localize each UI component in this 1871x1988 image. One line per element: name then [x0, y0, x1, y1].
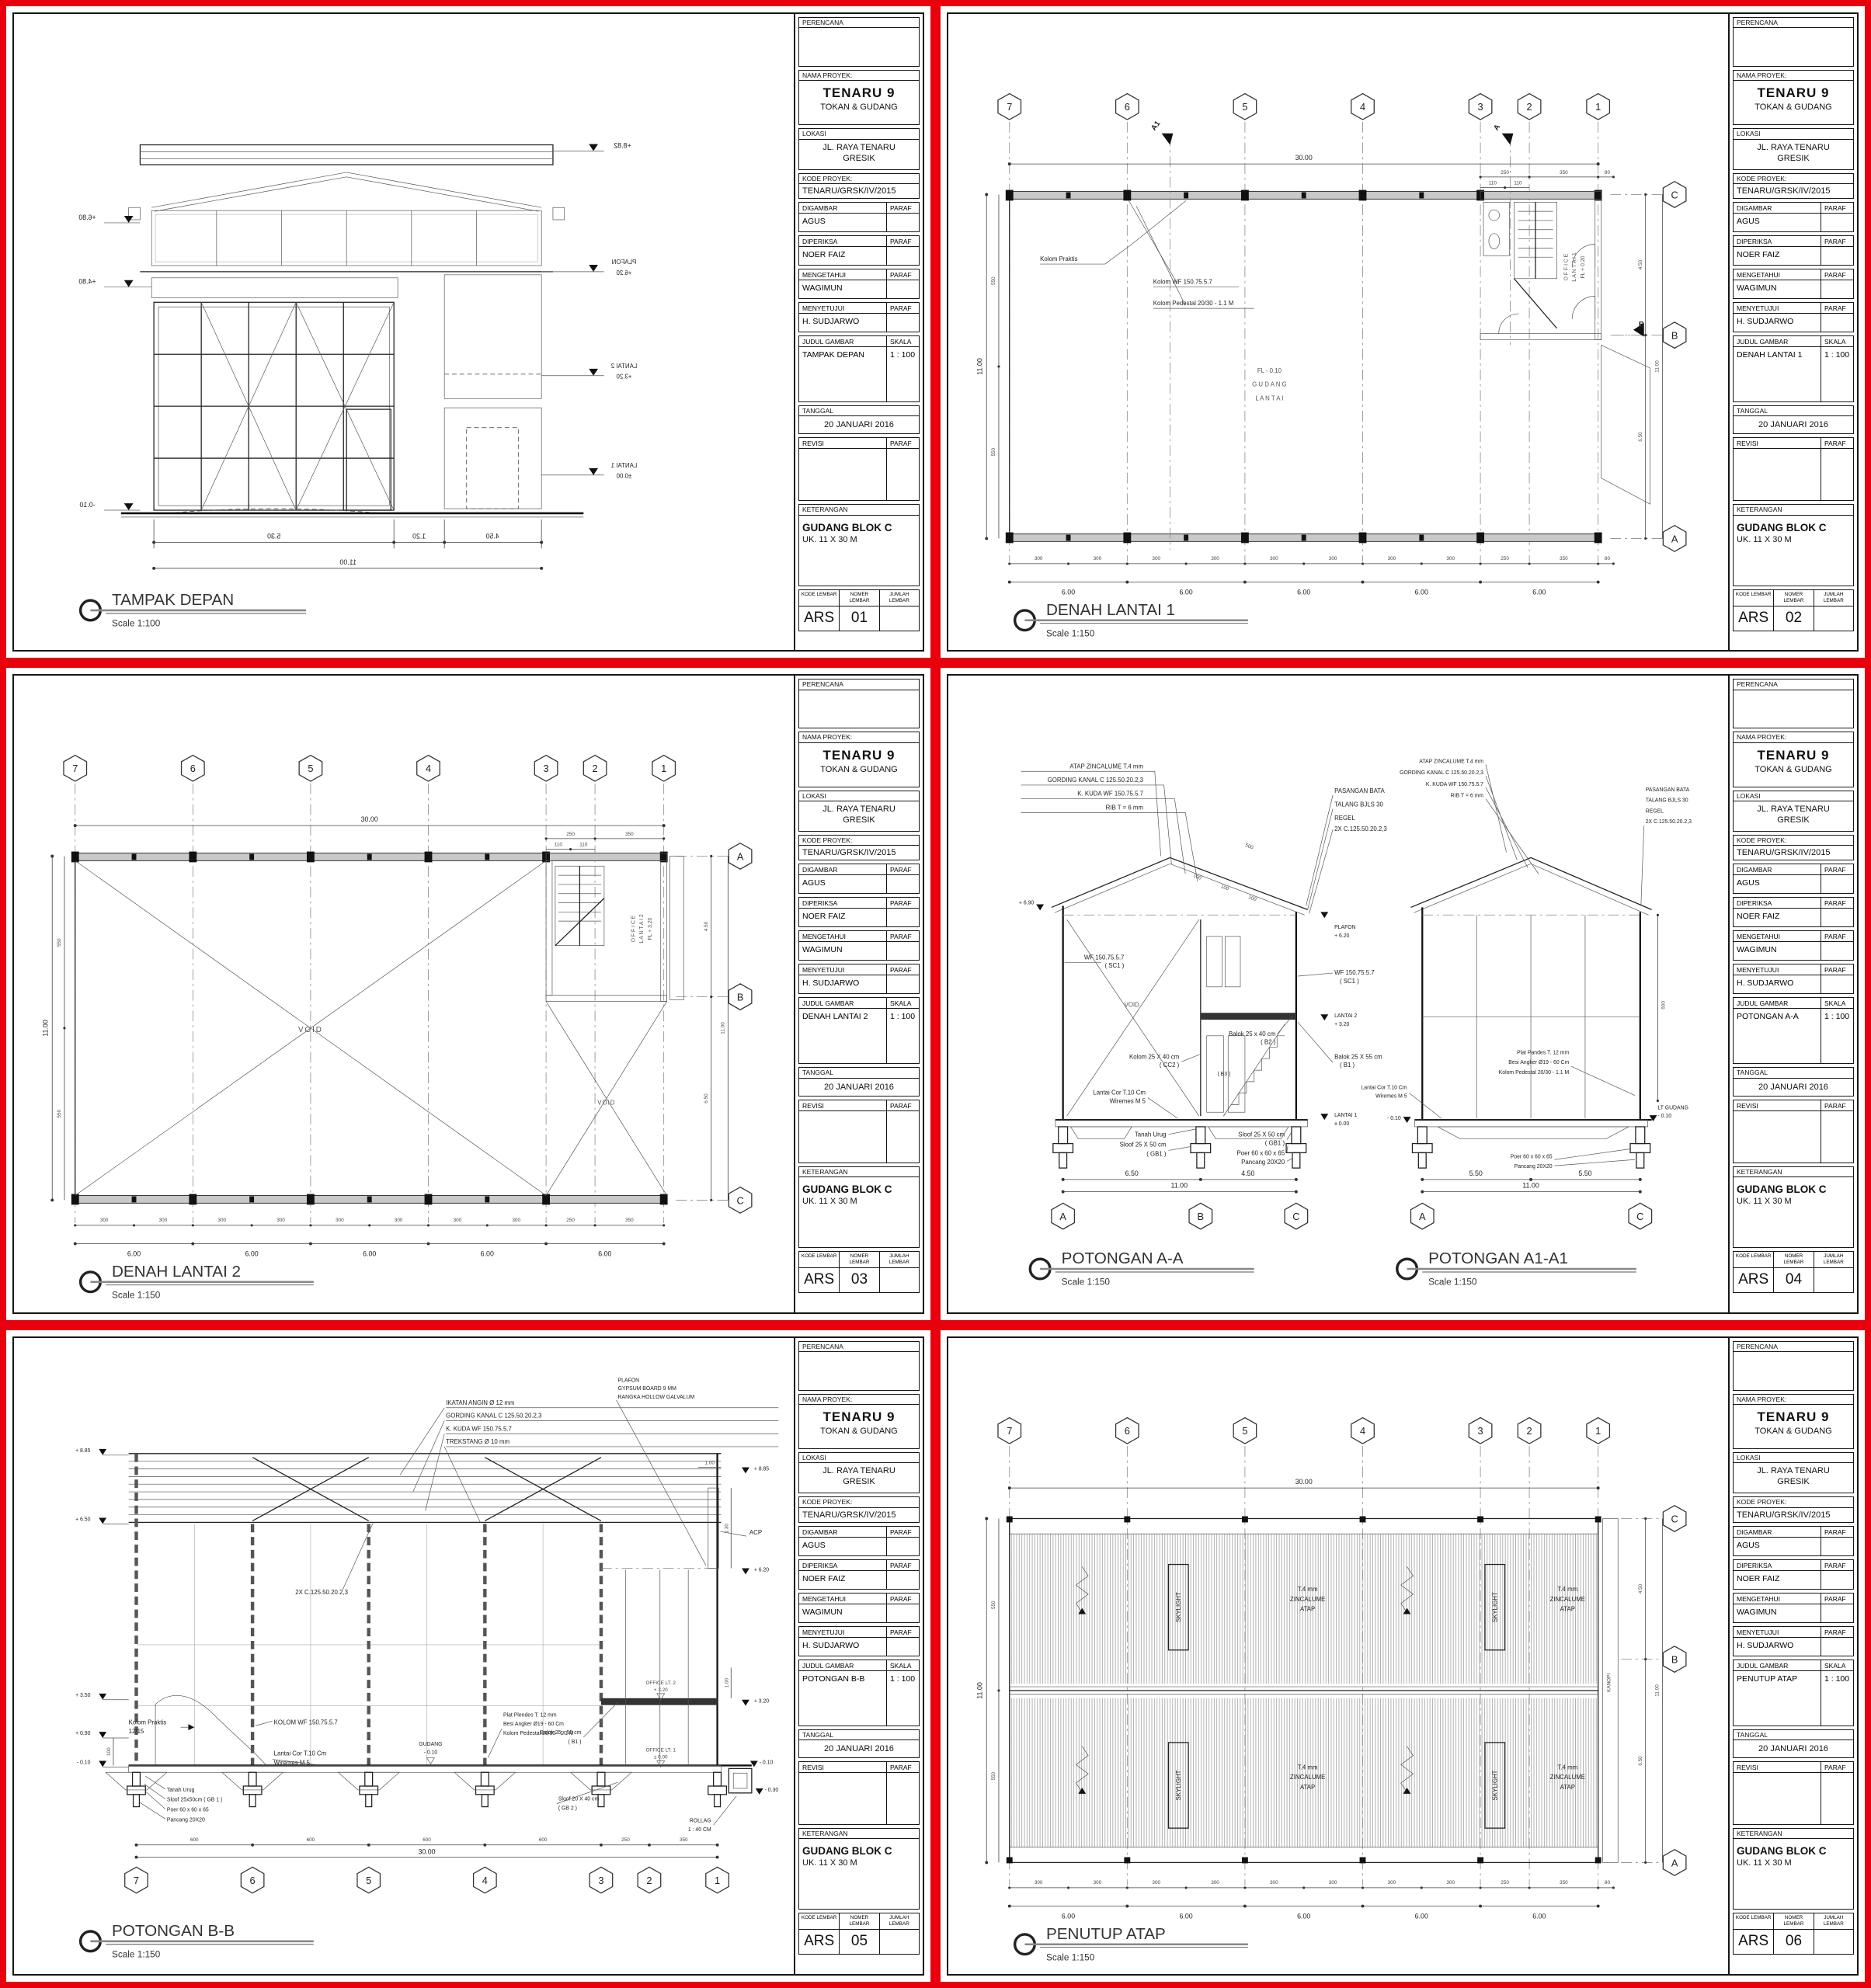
skala-label: SKALA [886, 1660, 919, 1671]
diperiksa-label: DIPERIKSA [1734, 1560, 1821, 1571]
svg-text:Poer 60 x 60 x 65: Poer 60 x 60 x 65 [167, 1807, 209, 1812]
svg-text:11.00: 11.00 [1654, 360, 1660, 373]
svg-text:6.00: 6.00 [127, 1250, 141, 1258]
section-a1-marker: A1 [1149, 119, 1163, 132]
tanggal-value: 20 JANUARI 2016 [799, 1079, 919, 1096]
paraf-cell [886, 1571, 919, 1589]
svg-text:6: 6 [250, 1875, 256, 1886]
sheet3-drawing-area: 7 6 5 4 3 2 1 A B C [14, 676, 794, 1312]
keterangan-line1: GUDANG BLOK C [802, 1183, 916, 1195]
svg-text:Poer 60 x 60 x 65: Poer 60 x 60 x 65 [1236, 1150, 1285, 1157]
skala-value: 1 : 100 [1821, 1009, 1853, 1063]
svg-text:+ 6.50: + 6.50 [75, 1517, 90, 1522]
titleblock-digambar: DIGAMBARPARAF AGUS [798, 202, 920, 232]
grid-bubbles-columns: 7 6 5 4 3 2 1 [998, 94, 1609, 120]
skala-value: 1 : 100 [886, 347, 919, 401]
lokasi-line1: JL. RAYA TENARU [802, 1466, 916, 1475]
elevation-level-marks: +8.82 +6.80 +4.80 -0.10 PLAFON +6.20 LAN… [78, 141, 637, 510]
svg-text:2: 2 [1527, 1425, 1532, 1437]
nomer-lembar-value: 03 [840, 1268, 878, 1292]
svg-text:- 0.10: - 0.10 [1387, 1116, 1401, 1121]
titleblock-diperiksa: DIPERIKSAPARAF NOER FAIZ [798, 235, 920, 266]
caption: PENUTUP ATAP Scale 1:150 [1015, 1925, 1248, 1963]
svg-text:300: 300 [1094, 1880, 1102, 1885]
svg-text:+ 0.90: + 0.90 [75, 1731, 90, 1736]
svg-text:5.50: 5.50 [1578, 1170, 1591, 1177]
kode-proyek-value: TENARU/GRSK/IV/2015 [1734, 1508, 1853, 1522]
skala-label: SKALA [1821, 998, 1853, 1009]
titleblock-mengetahui: MENGETAHUIPARAF WAGIMUN [798, 269, 920, 299]
svg-text:300: 300 [1152, 556, 1160, 561]
elevation-dimensions: 5.30 1.20 4.50 11.00 [152, 520, 543, 570]
paraf-cell [1821, 875, 1853, 893]
project-name: TENARU 9 [1737, 1409, 1850, 1425]
paraf-label: PARAF [1821, 438, 1853, 449]
keterangan-value: GUDANG BLOK C UK. 11 X 30 M [1734, 516, 1853, 586]
titleblock-lokasi: LOKASI JL. RAYA TENARU GRESIK [798, 128, 920, 169]
paraf-label: PARAF [1821, 1527, 1853, 1538]
svg-text:ZINCALUME: ZINCALUME [1290, 1774, 1325, 1781]
svg-text:A: A [1671, 533, 1678, 544]
svg-text:Kolom WF 150.75.5.7: Kolom WF 150.75.5.7 [1153, 279, 1212, 286]
svg-text:C: C [1636, 1211, 1643, 1222]
level-plafon-label: PLAFON [611, 259, 636, 266]
svg-text:550: 550 [57, 1110, 62, 1118]
svg-text:300: 300 [1388, 1880, 1396, 1885]
caption-title: POTONGAN B-B [112, 1922, 235, 1940]
svg-text:110: 110 [1489, 181, 1497, 186]
judul-gambar-label: JUDUL GAMBAR [1734, 998, 1821, 1009]
judul-gambar-value: POTONGAN B-B [799, 1671, 886, 1726]
nama-proyek-value: TENARU 9 TOKAN & GUDANG [1734, 743, 1853, 787]
titleblock-keterangan: KETERANGAN GUDANG BLOK C UK. 11 X 30 M [798, 1166, 920, 1248]
svg-text:TREKSTANG Ø 10 mm: TREKSTANG Ø 10 mm [446, 1438, 509, 1445]
paraf-cell [886, 909, 919, 926]
perencana-value [1734, 28, 1853, 66]
sheet5-titleblock: PERENCANA NAMA PROYEK: TENARU 9 TOKAN & … [794, 1338, 923, 1974]
paraf-cell [1821, 1571, 1853, 1589]
nama-proyek-label: NAMA PROYEK: [799, 1395, 919, 1405]
keterangan-value: GUDANG BLOK C UK. 11 X 30 M [799, 1839, 919, 1909]
svg-text:WF 150.75.5.7: WF 150.75.5.7 [1334, 969, 1375, 976]
digambar-label: DIGAMBAR [799, 864, 886, 875]
skala-value: 1 : 100 [1821, 1671, 1853, 1726]
svg-text:300: 300 [1270, 556, 1278, 561]
kode-proyek-label: KODE PROYEK: [1734, 836, 1853, 846]
titleblock-nama-proyek: NAMA PROYEK: TENARU 9 TOKAN & GUDANG [798, 70, 920, 125]
svg-text:ZINCALUME: ZINCALUME [1550, 1774, 1585, 1781]
wall-framing [136, 1453, 717, 1765]
project-subtitle: TOKAN & GUDANG [802, 103, 916, 112]
svg-text:1: 1 [1595, 101, 1601, 113]
digambar-value: AGUS [799, 875, 886, 893]
level-680: +6.80 [78, 214, 96, 221]
svg-text:( B1 ): ( B1 ) [569, 1739, 582, 1745]
office-label: O F F I C E L A N T A I 2 FL + 3.20 [631, 914, 653, 944]
tanggal-label: TANGGAL [1734, 1068, 1853, 1078]
svg-text:O F F I C E: O F F I C E [631, 916, 636, 943]
dim-450: 4.50 [485, 532, 499, 540]
titleblock-tanggal: TANGGAL 20 JANUARI 2016 [1733, 1067, 1854, 1096]
paraf-cell [886, 942, 919, 960]
keterangan-label: KETERANGAN [1734, 1829, 1853, 1839]
grid-bubbles-columns: 7 6 5 4 3 2 1 [998, 1417, 1609, 1443]
paraf-label: PARAF [1821, 236, 1853, 247]
titleblock-judul-gambar: JUDUL GAMBARSKALA DENAH LANTAI 11 : 100 [1733, 335, 1854, 402]
svg-text:GORDING KANAL C 125.50.20.2,3: GORDING KANAL C 125.50.20.2,3 [1048, 777, 1144, 784]
titleblock-perencana: PERENCANA [798, 679, 920, 728]
svg-text:T.4 mm: T.4 mm [1557, 1586, 1577, 1593]
svg-text:7: 7 [134, 1875, 139, 1886]
svg-text:300: 300 [1094, 556, 1102, 561]
svg-text:4.50: 4.50 [704, 922, 709, 932]
revisi-cell [799, 1111, 886, 1163]
caption-scale: Scale 1:150 [1046, 1952, 1095, 1962]
section-a-a: VOID [1052, 858, 1308, 1169]
nomer-lembar-label: NOMER LEMBAR [840, 1252, 878, 1268]
grid-bubbles-rows: C B A [1610, 182, 1685, 551]
keterangan-label: KETERANGAN [1734, 505, 1853, 515]
paraf-label: PARAF [1821, 864, 1853, 875]
level-882: +8.82 [614, 141, 631, 149]
grid-bubbles-rows: A B C [676, 843, 751, 1213]
titleblock-revisi: REVISIPARAF [1733, 1761, 1854, 1825]
titleblock-diperiksa: DIPERIKSAPARAF NOER FAIZ [798, 1559, 920, 1590]
svg-text:300: 300 [276, 1218, 285, 1223]
mengetahui-label: MENGETAHUI [1734, 1594, 1821, 1604]
revisi-label: REVISI [799, 1100, 886, 1111]
lokasi-value: JL. RAYA TENARU GRESIK [1734, 1463, 1853, 1493]
caption-title: PENUTUP ATAP [1046, 1925, 1166, 1943]
svg-text:6: 6 [190, 763, 196, 775]
svg-text:SKYLIGHT: SKYLIGHT [1175, 1770, 1182, 1800]
svg-text:300: 300 [159, 1218, 168, 1223]
svg-text:Pancang 20X20: Pancang 20X20 [1515, 1164, 1553, 1170]
judul-gambar-value: POTONGAN A-A [1734, 1009, 1821, 1063]
titleblock-menyetujui: MENYETUJUIPARAF H. SUDJARWO [798, 1626, 920, 1656]
titleblock-mengetahui: MENGETAHUIPARAF WAGIMUN [1733, 1593, 1854, 1623]
paraf-label: PARAF [886, 236, 919, 247]
titleblock-kode-proyek: KODE PROYEK: TENARU/GRSK/IV/2015 [1733, 173, 1854, 199]
svg-text:A: A [1671, 1857, 1678, 1868]
lokasi-line1: JL. RAYA TENARU [1737, 1466, 1850, 1475]
lokasi-line2: GRESIK [1737, 154, 1850, 163]
svg-text:GUDANG: GUDANG [419, 1741, 442, 1746]
plan-walls [1006, 190, 1602, 544]
nama-proyek-value: TENARU 9 TOKAN & GUDANG [1734, 81, 1853, 124]
svg-text:1 : 40 CM: 1 : 40 CM [688, 1827, 711, 1833]
lokasi-label: LOKASI [799, 1453, 919, 1463]
sheet1-titleblock: PERENCANA NAMA PROYEK: TENARU 9 TOKAN & … [794, 14, 923, 650]
tanggal-label: TANGGAL [799, 1730, 919, 1740]
svg-text:TALANG BJLS 30: TALANG BJLS 30 [1646, 798, 1688, 804]
project-subtitle: TOKAN & GUDANG [802, 765, 916, 774]
titleblock-judul-gambar: JUDUL GAMBARSKALA DENAH LANTAI 21 : 100 [798, 997, 920, 1064]
caption: DENAH LANTAI 2 Scale 1:150 [81, 1263, 314, 1301]
tanggal-value: 20 JANUARI 2016 [1734, 416, 1853, 433]
titleblock-tanggal: TANGGAL 20 JANUARI 2016 [798, 1729, 920, 1758]
paraf-cell [886, 280, 919, 298]
titleblock-mengetahui: MENGETAHUIPARAF WAGIMUN [1733, 269, 1854, 299]
keterangan-label: KETERANGAN [799, 1167, 919, 1177]
revisi-cell [1734, 1773, 1821, 1824]
lokasi-line1: JL. RAYA TENARU [802, 805, 916, 814]
svg-text:ATAP: ATAP [1560, 1605, 1575, 1612]
project-subtitle: TOKAN & GUDANG [1737, 765, 1850, 774]
svg-text:250: 250 [566, 1218, 575, 1223]
titleblock-revisi: REVISIPARAF [1733, 437, 1854, 501]
kode-proyek-label: KODE PROYEK: [799, 836, 919, 846]
svg-text:350: 350 [1560, 1880, 1568, 1885]
titleblock-judul-gambar: JUDUL GAMBARSKALA POTONGAN A-A1 : 100 [1733, 997, 1854, 1064]
svg-text:300: 300 [1152, 1880, 1160, 1885]
paraf-cell [1821, 1773, 1853, 1824]
titleblock-revisi: REVISIPARAF [798, 437, 920, 501]
lokasi-line2: GRESIK [802, 154, 916, 163]
revisi-label: REVISI [1734, 438, 1821, 449]
titleblock-keterangan: KETERANGAN GUDANG BLOK C UK. 11 X 30 M [798, 1828, 920, 1910]
judul-gambar-value: DENAH LANTAI 1 [1734, 347, 1821, 401]
svg-text:2X C.125.50.20.2,3: 2X C.125.50.20.2,3 [295, 1589, 348, 1596]
svg-text:+ 3.50: + 3.50 [75, 1692, 90, 1698]
paraf-label: PARAF [1821, 203, 1853, 214]
svg-text:L A N T A I 1: L A N T A I 1 [1572, 252, 1577, 282]
svg-text:Plat Pandes T. 12 mm: Plat Pandes T. 12 mm [1517, 1051, 1569, 1056]
office-area: O F F I C E L A N T A I 1 FL + 0.20 [1480, 192, 1601, 340]
svg-text:RIB T = 6 mm: RIB T = 6 mm [1451, 794, 1484, 799]
titleblock-menyetujui: MENYETUJUIPARAF H. SUDJARWO [1733, 1626, 1854, 1656]
keterangan-line2: UK. 11 X 30 M [1737, 535, 1850, 544]
svg-text:300: 300 [1035, 556, 1043, 561]
skala-value: 1 : 100 [886, 1009, 919, 1063]
keterangan-line1: GUDANG BLOK C [1737, 1183, 1850, 1195]
svg-text:ZINCALUME: ZINCALUME [1290, 1595, 1325, 1602]
office-mezzanine [601, 1488, 719, 1764]
jumlah-lembar-value [880, 606, 919, 613]
judul-gambar-label: JUDUL GAMBAR [799, 1660, 886, 1671]
nama-proyek-value: TENARU 9 TOKAN & GUDANG [799, 743, 919, 787]
svg-text:6.00: 6.00 [1415, 1912, 1428, 1920]
titleblock-digambar: DIGAMBARPARAF AGUS [1733, 864, 1854, 894]
svg-text:1.00: 1.00 [705, 1460, 715, 1465]
caption-scale: Scale 1:150 [112, 1290, 161, 1301]
svg-text:6: 6 [1125, 101, 1130, 113]
svg-text:L A N T A I: L A N T A I [1255, 394, 1283, 401]
kode-proyek-label: KODE PROYEK: [799, 1497, 919, 1507]
lokasi-line1: JL. RAYA TENARU [802, 143, 916, 152]
keterangan-line1: GUDANG BLOK C [802, 1845, 916, 1857]
svg-text:B: B [1671, 330, 1678, 342]
keterangan-line1: GUDANG BLOK C [1737, 1845, 1850, 1857]
paraf-cell [1821, 975, 1853, 993]
svg-text:G U D A N G: G U D A N G [1252, 381, 1287, 388]
section-a1-a1 [1411, 858, 1652, 1169]
paraf-cell [1821, 909, 1853, 926]
titleblock-tanggal: TANGGAL 20 JANUARI 2016 [1733, 1729, 1854, 1758]
nama-proyek-value: TENARU 9 TOKAN & GUDANG [1734, 1405, 1853, 1448]
svg-text:2: 2 [646, 1875, 652, 1886]
gudang-label: FL - 0.10 G U D A N G L A N T A I [1252, 367, 1287, 401]
caption-scale: Scale 1:100 [112, 618, 161, 629]
dimensions: 30.00 250 350 110 110 11.00 550 550 4.50… [41, 816, 728, 1258]
lokasi-value: JL. RAYA TENARU GRESIK [1734, 140, 1853, 169]
section-a1-a1-notes: ATAP ZINCALUME T.4 mm GORDING KANAL C 12… [1361, 759, 1692, 1170]
section-a-marker: A [1492, 123, 1502, 132]
svg-text:A: A [737, 851, 744, 863]
svg-text:( GB1 ): ( GB1 ) [1265, 1140, 1285, 1147]
svg-text:250: 250 [1501, 556, 1509, 561]
svg-text:LT GUDANG: LT GUDANG [1657, 1106, 1688, 1111]
svg-text:4: 4 [482, 1875, 488, 1886]
titleblock-keterangan: KETERANGAN GUDANG BLOK C UK. 11 X 30 M [798, 504, 920, 586]
svg-text:( B3 ): ( B3 ) [1217, 1072, 1230, 1077]
titleblock-sheet-number: KODE LEMBARARS NOMER LEMBAR01 JUMLAH LEM… [798, 589, 920, 631]
paraf-label: PARAF [886, 1527, 919, 1538]
digambar-label: DIGAMBAR [1734, 1527, 1821, 1538]
titleblock-kode-proyek: KODE PROYEK: TENARU/GRSK/IV/2015 [798, 173, 920, 199]
kode-proyek-label: KODE PROYEK: [1734, 174, 1853, 184]
menyetujui-label: MENYETUJUI [799, 1627, 886, 1638]
skala-label: SKALA [886, 998, 919, 1009]
svg-text:7: 7 [1007, 101, 1012, 113]
digambar-label: DIGAMBAR [1734, 203, 1821, 214]
revisi-cell [1734, 449, 1821, 500]
sheet-penutup-atap: 7 6 5 4 3 2 1 C B A KANOPI [941, 1330, 1865, 1982]
jumlah-lembar-value [1814, 1268, 1853, 1275]
mengetahui-label: MENGETAHUI [1734, 931, 1821, 942]
kode-lembar-value: ARS [1734, 606, 1773, 631]
svg-text:11.00: 11.00 [975, 358, 983, 375]
paraf-cell [1821, 247, 1853, 265]
svg-text:300: 300 [1388, 556, 1396, 561]
titleblock-nama-proyek: NAMA PROYEK: TENARU 9 TOKAN & GUDANG [798, 732, 920, 787]
jumlah-lembar-label: JUMLAH LEMBAR [880, 1252, 919, 1268]
svg-text:Wiremes M 5: Wiremes M 5 [1110, 1098, 1146, 1105]
svg-text:Plat Plendes T. 12 mm: Plat Plendes T. 12 mm [503, 1712, 557, 1718]
titleblock-revisi: REVISIPARAF [798, 1100, 920, 1163]
svg-text:250: 250 [566, 832, 575, 837]
keterangan-label: KETERANGAN [799, 1829, 919, 1839]
svg-text:ATAP: ATAP [1300, 1784, 1315, 1791]
paraf-label: PARAF [1821, 964, 1853, 975]
titleblock-judul-gambar: JUDUL GAMBARSKALA PENUTUP ATAP1 : 100 [1733, 1660, 1854, 1726]
judul-gambar-label: JUDUL GAMBAR [1734, 1660, 1821, 1671]
svg-text:Tanah Urug: Tanah Urug [1135, 1131, 1167, 1138]
svg-text:+ 3.20: + 3.20 [1334, 1022, 1349, 1027]
svg-text:80: 80 [1605, 556, 1611, 561]
lokasi-line2: GRESIK [1737, 815, 1850, 825]
svg-text:RIB T = 6 mm: RIB T = 6 mm [1106, 805, 1144, 812]
sheet5-drawing-area: IKATAN ANGIN Ø 12 mm GORDING KANAL C 125… [14, 1338, 794, 1974]
caption: TAMPAK DEPAN Scale 1:100 [81, 591, 306, 629]
svg-text:+ 6.20: + 6.20 [754, 1567, 769, 1573]
svg-text:6.50: 6.50 [704, 1093, 709, 1103]
svg-text:K. KUDA WF 150.75.5.7: K. KUDA WF 150.75.5.7 [1077, 791, 1143, 798]
svg-text:Tanah Urug: Tanah Urug [167, 1788, 195, 1793]
svg-text:Besi Angker Ø19 - 60 Cm: Besi Angker Ø19 - 60 Cm [503, 1722, 564, 1727]
kode-proyek-value: TENARU/GRSK/IV/2015 [799, 1508, 919, 1522]
perencana-value [1734, 1352, 1853, 1390]
svg-text:5: 5 [1242, 1425, 1247, 1437]
titleblock-digambar: DIGAMBARPARAF AGUS [1733, 1526, 1854, 1556]
svg-text:Pancang 20X20: Pancang 20X20 [1241, 1159, 1285, 1166]
titleblock-lokasi: LOKASI JL. RAYA TENARU GRESIK [1733, 791, 1854, 832]
paraf-cell [1821, 449, 1853, 500]
lokasi-label: LOKASI [799, 791, 919, 801]
kanopi-label: KANOPI [1606, 1673, 1612, 1691]
paraf-label: PARAF [1821, 303, 1853, 314]
paraf-label: PARAF [886, 898, 919, 909]
tanggal-label: TANGGAL [799, 406, 919, 416]
kode-lembar-value: ARS [1734, 1268, 1773, 1292]
titleblock-kode-proyek: KODE PROYEK: TENARU/GRSK/IV/2015 [798, 835, 920, 860]
sheet-potongan-a: VOID ATAP ZINCALUME T.4 mm GORDING KANAL… [941, 668, 1865, 1319]
judul-gambar-label: JUDUL GAMBAR [799, 998, 886, 1009]
section-a-a-dims: 6.50 4.50 11.00 A B C [1052, 1170, 1308, 1229]
titleblock-sheet-number: KODE LEMBARARS NOMER LEMBAR06 JUMLAH LEM… [1733, 1913, 1854, 1955]
mengetahui-label: MENGETAHUI [799, 269, 886, 280]
svg-text:4: 4 [1360, 1425, 1365, 1437]
svg-text:LANTAI 1: LANTAI 1 [1334, 1113, 1357, 1118]
svg-text:KOLOM WF 150.75.5.7: KOLOM WF 150.75.5.7 [274, 1719, 338, 1726]
skala-label: SKALA [1821, 1660, 1853, 1671]
sheet-denah-lantai-2: 7 6 5 4 3 2 1 A B C [6, 668, 930, 1319]
svg-text:6.00: 6.00 [1062, 588, 1075, 596]
titleblock-perencana: PERENCANA [798, 1341, 920, 1391]
menyetujui-label: MENYETUJUI [799, 303, 886, 314]
svg-text:4.50: 4.50 [1638, 1583, 1643, 1594]
svg-text:SKYLIGHT: SKYLIGHT [1175, 1592, 1182, 1622]
keterangan-line2: UK. 11 X 30 M [1737, 1197, 1850, 1206]
kode-lembar-label: KODE LEMBAR [799, 1252, 839, 1268]
caption: DENAH LANTAI 1 Scale 1:150 [1015, 601, 1248, 639]
project-name: TENARU 9 [1737, 85, 1850, 101]
svg-text:T.4 mm: T.4 mm [1557, 1764, 1577, 1771]
revisi-label: REVISI [799, 438, 886, 449]
titleblock-nama-proyek: NAMA PROYEK: TENARU 9 TOKAN & GUDANG [1733, 1394, 1854, 1449]
svg-text:3: 3 [544, 763, 549, 775]
tanggal-value: 20 JANUARI 2016 [1734, 1740, 1853, 1757]
svg-text:PASANGAN BATA: PASANGAN BATA [1334, 787, 1385, 794]
lokasi-line2: GRESIK [802, 1477, 916, 1486]
menyetujui-value: H. SUDJARWO [1734, 1638, 1821, 1656]
nomer-lembar-value: 02 [1774, 606, 1813, 631]
titleblock-lokasi: LOKASI JL. RAYA TENARU GRESIK [798, 1452, 920, 1493]
svg-text:2X C.125.50.20.2,3: 2X C.125.50.20.2,3 [1646, 819, 1692, 825]
titleblock-keterangan: KETERANGAN GUDANG BLOK C UK. 11 X 30 M [1733, 1166, 1854, 1248]
sheet6-drawing-area: 7 6 5 4 3 2 1 C B A KANOPI [948, 1338, 1728, 1974]
svg-text:100: 100 [1247, 895, 1257, 903]
caption-title: POTONGAN A1-A1 [1428, 1249, 1568, 1267]
svg-text:Balok 25 x 55 cm: Balok 25 x 55 cm [541, 1730, 582, 1736]
svg-text:GORDING KANAL C 125.50.20.2,3: GORDING KANAL C 125.50.20.2,3 [1400, 770, 1483, 776]
paraf-label: PARAF [886, 269, 919, 280]
skala-label: SKALA [886, 336, 919, 347]
svg-text:RANGKA HOLLOW GALVALUM: RANGKA HOLLOW GALVALUM [618, 1395, 695, 1400]
svg-text:600: 600 [190, 1837, 199, 1843]
svg-text:- 0.10: - 0.10 [424, 1750, 438, 1755]
svg-text:- 0.10: - 0.10 [760, 1760, 774, 1765]
lokasi-line2: GRESIK [1737, 1477, 1850, 1486]
perencana-label: PERENCANA [1734, 18, 1853, 28]
paraf-label: PARAF [886, 303, 919, 314]
svg-text:6.00: 6.00 [1297, 588, 1310, 596]
svg-text:Sloof 25 X 50 cm: Sloof 25 X 50 cm [1238, 1131, 1285, 1138]
svg-text:6.00: 6.00 [481, 1250, 494, 1258]
lokasi-value: JL. RAYA TENARU GRESIK [1734, 801, 1853, 831]
paraf-label: PARAF [1821, 269, 1853, 280]
sheet6-titleblock: PERENCANA NAMA PROYEK: TENARU 9 TOKAN & … [1728, 1338, 1857, 1974]
